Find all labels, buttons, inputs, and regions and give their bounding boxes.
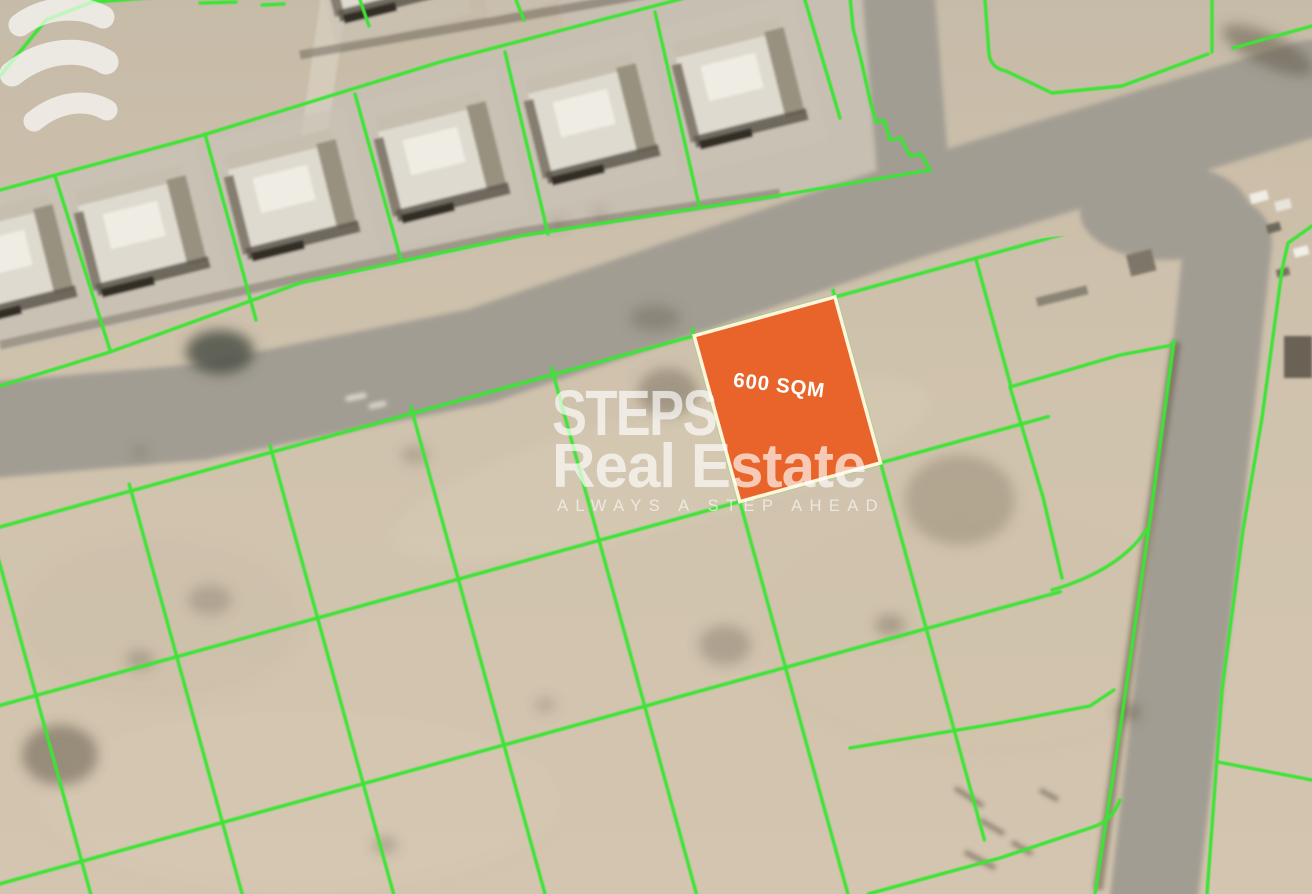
satellite-image — [0, 0, 1312, 894]
satellite-plot-map: STEPS Real Estate ALWAYS A STEP AHEAD 60… — [0, 0, 1312, 894]
